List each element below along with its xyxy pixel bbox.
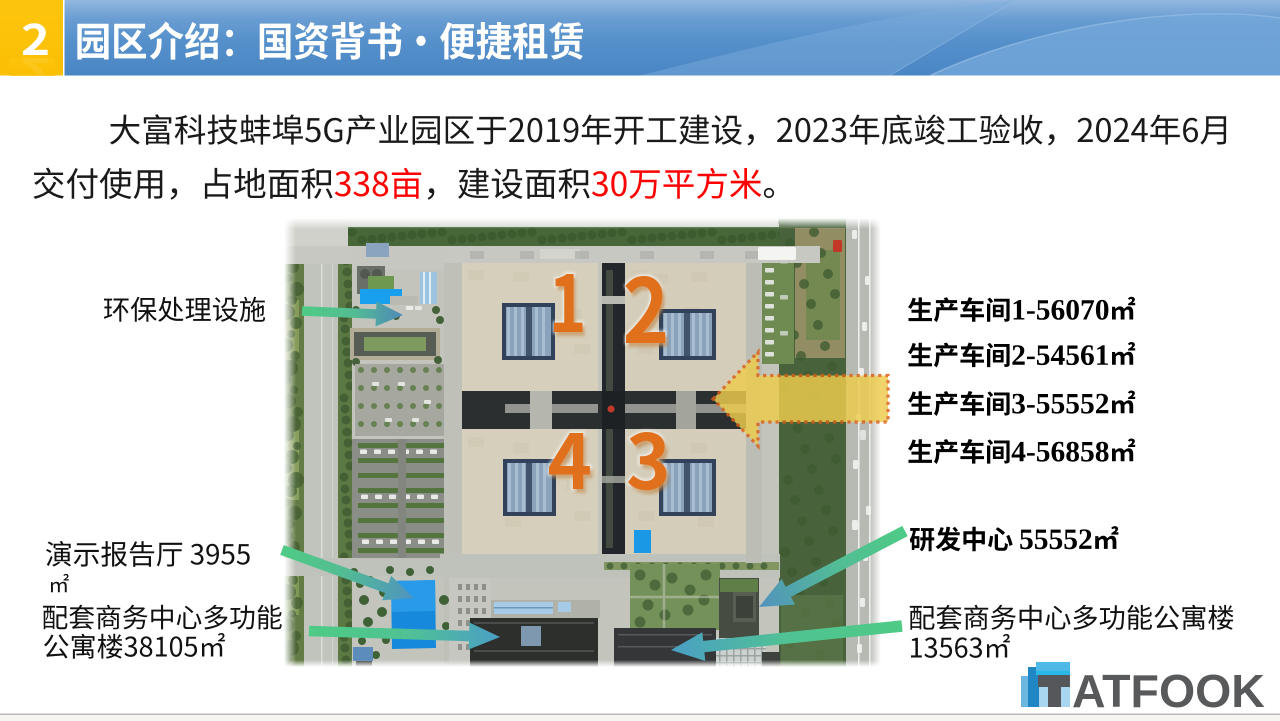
- svg-text:ATFOOK: ATFOOK: [1072, 665, 1265, 717]
